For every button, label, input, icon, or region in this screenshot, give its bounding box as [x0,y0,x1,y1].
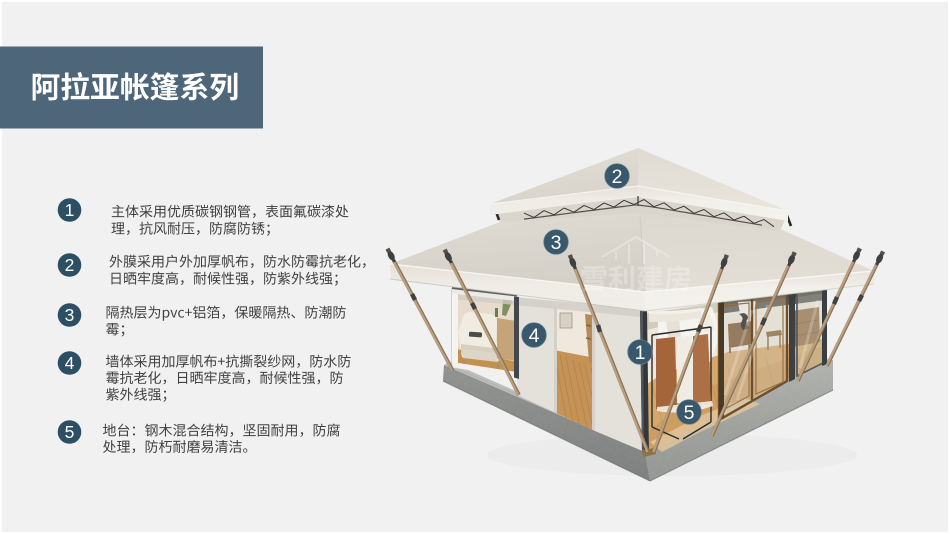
svg-text:4: 4 [65,353,75,373]
svg-text:XUELI TENT: XUELI TENT [601,291,672,300]
svg-text:2: 2 [612,166,623,188]
svg-text:1: 1 [635,342,646,364]
svg-text:5: 5 [684,402,695,424]
svg-text:4: 4 [529,325,540,347]
svg-text:5: 5 [65,422,75,442]
svg-text:3: 3 [65,305,75,325]
svg-text:1: 1 [65,200,75,220]
svg-text:2: 2 [65,255,75,275]
svg-text:3: 3 [551,232,562,254]
